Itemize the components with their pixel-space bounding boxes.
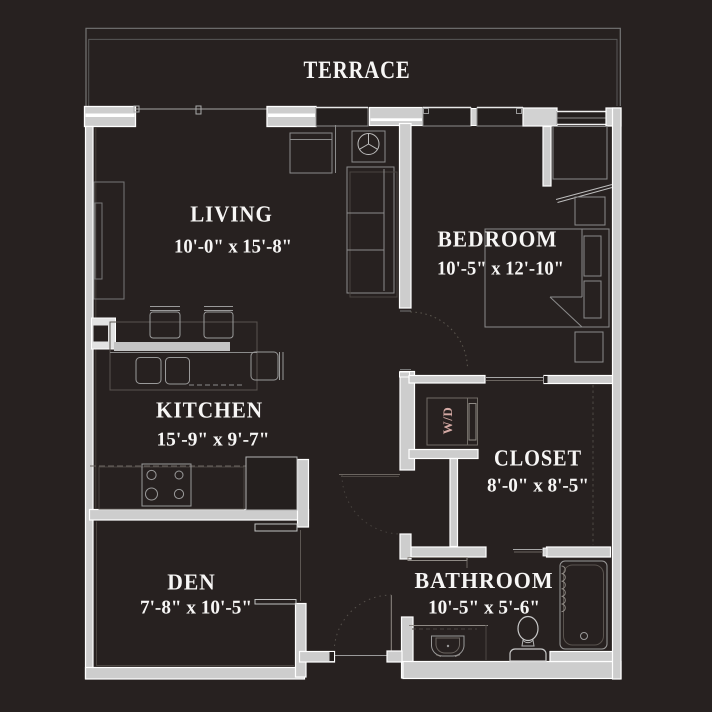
- svg-text:DEN: DEN: [167, 570, 216, 595]
- svg-text:W/D: W/D: [440, 407, 455, 435]
- svg-text:BEDROOM: BEDROOM: [438, 227, 558, 252]
- svg-text:10'-5" x 12'-10": 10'-5" x 12'-10": [437, 259, 564, 280]
- svg-text:CLOSET: CLOSET: [494, 446, 582, 471]
- svg-text:7'-8" x 10'-5": 7'-8" x 10'-5": [140, 598, 252, 619]
- svg-text:10'-0" x 15'-8": 10'-0" x 15'-8": [174, 237, 292, 258]
- svg-text:TERRACE: TERRACE: [304, 57, 411, 84]
- svg-text:LIVING: LIVING: [190, 202, 273, 227]
- svg-text:KITCHEN: KITCHEN: [156, 398, 263, 423]
- svg-text:10'-5" x 5'-6": 10'-5" x 5'-6": [428, 598, 540, 619]
- svg-text:8'-0" x 8'-5": 8'-0" x 8'-5": [487, 476, 589, 497]
- svg-text:BATHROOM: BATHROOM: [415, 568, 554, 593]
- svg-text:15'-9" x 9'-7": 15'-9" x 9'-7": [157, 430, 270, 451]
